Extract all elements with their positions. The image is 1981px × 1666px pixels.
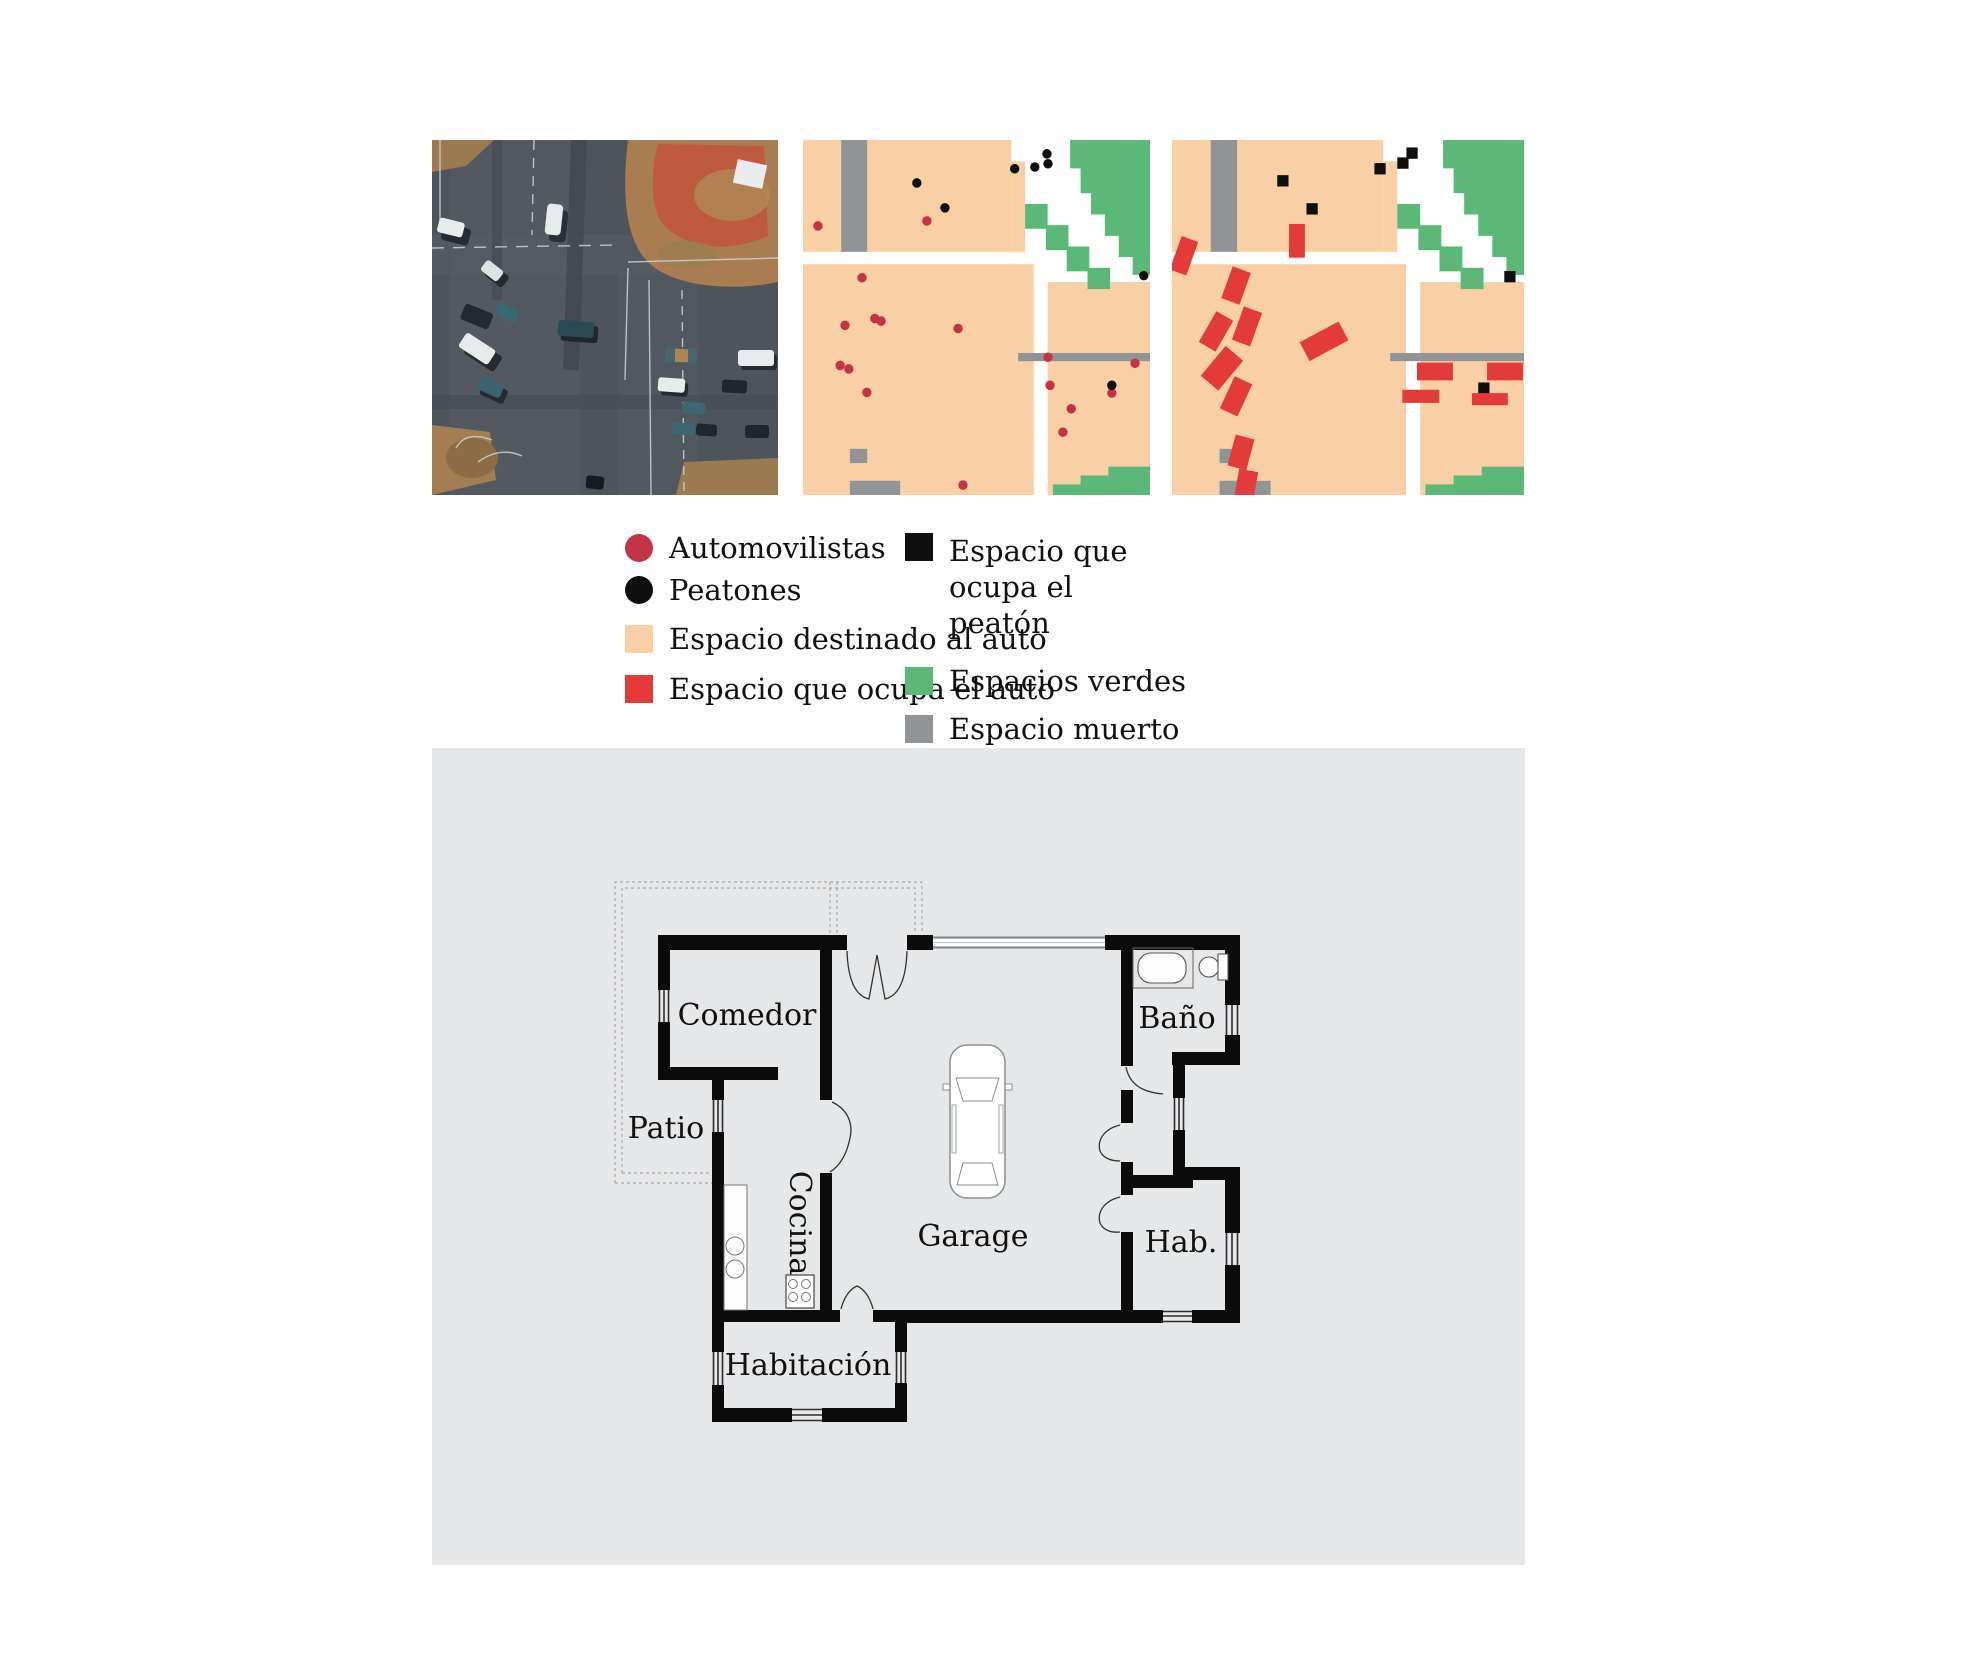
room-label-habitacion: Habitación (725, 1348, 892, 1383)
pedestrian-space-square (1504, 271, 1515, 282)
garage-door (933, 936, 1105, 949)
floor-plan-panel: Comedor Patio Cocina Garage Baño Hab. Ha… (432, 748, 1525, 1565)
car-dot (857, 273, 866, 283)
car-dot (862, 388, 871, 398)
car-dot (953, 324, 962, 334)
room-label-hab: Hab. (1145, 1225, 1218, 1260)
legend-label: Automovilistas (669, 533, 886, 563)
legend-swatch-black (905, 533, 933, 561)
pedestrian-space-square (1478, 382, 1489, 393)
legend-swatch-red_dot (625, 534, 653, 562)
room-label-garage: Garage (917, 1219, 1028, 1254)
car-dot (813, 221, 822, 231)
pedestrian-dot (1107, 381, 1116, 391)
room-label-bano: Baño (1138, 1001, 1215, 1036)
car-top-view (943, 1045, 1012, 1198)
space-map-dots (803, 140, 1150, 495)
pedestrian-space-square (1277, 175, 1288, 186)
car-dot (1058, 427, 1067, 437)
legend-label: Espacio muerto (949, 714, 1179, 744)
car-dot (922, 216, 931, 226)
car-dot (840, 321, 849, 331)
parked-car-rect (1487, 363, 1523, 381)
aerial-intersection-photo (432, 140, 778, 495)
pedestrian-dot (1010, 164, 1019, 174)
legend-label: Espacio que ocupa el peatón (949, 533, 1164, 641)
pedestrian-space-square (1374, 163, 1385, 174)
car-dot (1043, 352, 1052, 362)
legend-swatch-green (905, 667, 933, 695)
pedestrian-space-square (1406, 147, 1417, 158)
bathroom-fixtures (1133, 948, 1228, 988)
pedestrian-dot (940, 203, 949, 213)
floor-plan-drawing: Comedor Patio Cocina Garage Baño Hab. Ha… (432, 748, 1525, 1565)
car-dot (958, 480, 967, 490)
legend-item: Espacio que ocupa el peatón (905, 533, 1186, 641)
parked-car-rect (1472, 393, 1508, 405)
car-dot (1045, 381, 1054, 391)
legend-right-column: Espacio que ocupa el peatónEspacios verd… (905, 533, 1186, 744)
car-dot (876, 316, 885, 326)
legend-label: Espacios verdes (949, 666, 1186, 696)
car-dot (844, 364, 853, 374)
legend-swatch-red_square (625, 675, 653, 703)
pedestrian-dot (1030, 162, 1039, 172)
parked-car-rect (1402, 390, 1439, 403)
legend-swatch-peach (625, 625, 653, 653)
infographic-canvas: AutomovilistasPeatonesEspacio destinado … (0, 0, 1981, 1666)
pedestrian-space-square (1306, 203, 1317, 214)
legend-swatch-gray (905, 715, 933, 743)
car-dot (835, 361, 844, 371)
legend-label: Peatones (669, 575, 802, 605)
space-map-dots-panel (803, 140, 1150, 495)
parked-car-rect (1417, 363, 1453, 381)
room-label-patio: Patio (628, 1111, 704, 1146)
space-map-occupied-panel (1172, 140, 1524, 495)
room-label-cocina: Cocina (782, 1171, 817, 1276)
legend-swatch-black (625, 576, 653, 604)
legend-item: Espacios verdes (905, 666, 1186, 696)
pedestrian-dot (1043, 159, 1052, 169)
pedestrian-dot (1042, 149, 1051, 159)
car-dot (1130, 359, 1139, 369)
pedestrian-dot (1139, 271, 1148, 281)
legend-item: Espacio muerto (905, 714, 1186, 744)
room-label-comedor: Comedor (678, 998, 817, 1033)
aerial-photo-panel (432, 140, 778, 495)
car-space-rect (1289, 224, 1305, 258)
pedestrian-space-square (1397, 157, 1408, 168)
pedestrian-dot (912, 178, 921, 188)
space-map-occupied (1172, 140, 1524, 495)
car-dot (1067, 404, 1076, 414)
